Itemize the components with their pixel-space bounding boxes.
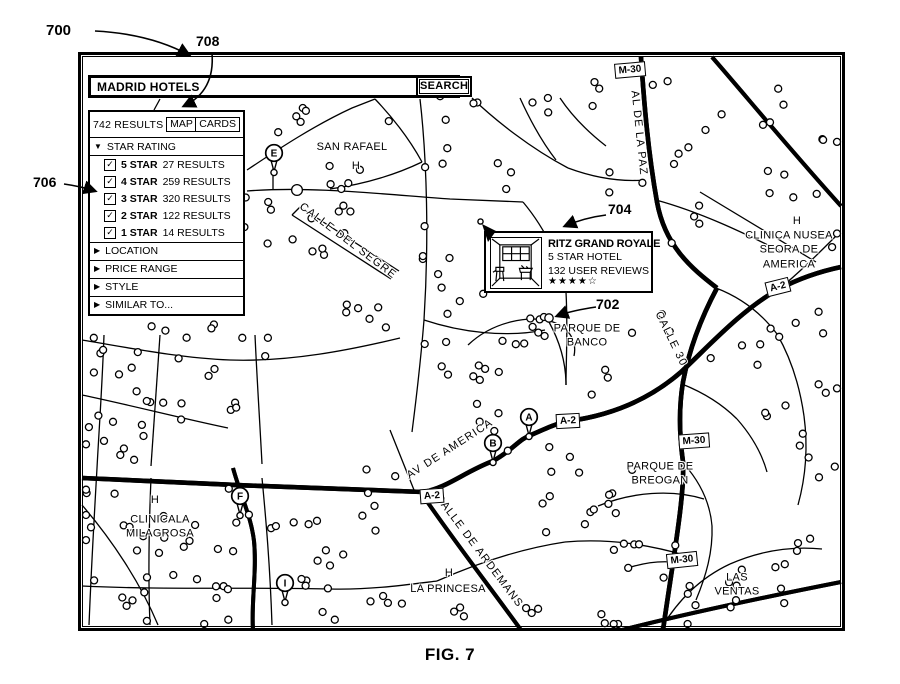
chevron-right-icon: ▶ (94, 283, 100, 291)
filter-label: 3 STAR (121, 193, 158, 205)
checkbox-2-star[interactable]: ✓ (104, 210, 116, 222)
section-location[interactable]: ▶LOCATION (90, 242, 243, 260)
section-label: SIMILAR TO... (105, 299, 173, 311)
filter-count: 122 RESULTS (163, 210, 231, 222)
tab-cards[interactable]: CARDS (195, 117, 240, 132)
results-filter-panel: 742 RESULTS MAP CARDS ▼STAR RATING✓5 STA… (88, 110, 245, 316)
section-star-rating[interactable]: ▼STAR RATING (90, 138, 243, 156)
figure-frame: EABFI SAN RAFAELHHCLINICA NUSEA SEORA DE… (78, 52, 845, 631)
search-input[interactable]: MADRID HOTELS (90, 77, 458, 96)
filter-label: 2 STAR (121, 210, 158, 222)
search-query-text: MADRID HOTELS (97, 80, 200, 94)
patent-figure-page: 700 708 706 704 702 (0, 0, 900, 684)
chevron-right-icon: ▶ (94, 265, 100, 273)
filter-row-2-star: ✓2 STAR122 RESULTS (90, 208, 243, 225)
checkbox-1-star[interactable]: ✓ (104, 227, 116, 239)
filter-count: 259 RESULTS (163, 176, 231, 188)
search-button[interactable]: SEARCH (416, 76, 472, 97)
results-header-row: 742 RESULTS MAP CARDS (90, 112, 243, 138)
hotel-callout[interactable]: RITZ GRAND ROYALE 5 STAR HOTEL 132 USER … (484, 231, 653, 293)
ref-numeral-704: 704 (608, 201, 631, 217)
filter-label: 1 STAR (121, 227, 158, 239)
section-style[interactable]: ▶STYLE (90, 278, 243, 296)
search-bar: MADRID HOTELS (88, 75, 460, 98)
hotel-callout-text: RITZ GRAND ROYALE 5 STAR HOTEL 132 USER … (548, 237, 647, 287)
section-label: PRICE RANGE (105, 263, 177, 275)
callout-pointer-icon (477, 218, 499, 244)
hotel-review-count: 132 USER REVIEWS (548, 265, 647, 277)
hotel-name: RITZ GRAND ROYALE (548, 238, 647, 250)
filter-row-1-star: ✓1 STAR14 RESULTS (90, 225, 243, 242)
section-label: LOCATION (105, 245, 158, 257)
hotel-star-class: 5 STAR HOTEL (548, 251, 647, 263)
ref-numeral-702: 702 (596, 296, 619, 312)
filter-count: 27 RESULTS (163, 159, 225, 171)
filter-row-3-star: ✓3 STAR320 RESULTS (90, 190, 243, 207)
ref-numeral-700: 700 (46, 22, 71, 39)
section-label: STAR RATING (107, 141, 176, 153)
filter-count: 14 RESULTS (163, 227, 225, 239)
checkbox-3-star[interactable]: ✓ (104, 193, 116, 205)
filter-label: 4 STAR (121, 176, 158, 188)
checkbox-5-star[interactable]: ✓ (104, 159, 116, 171)
section-label: STYLE (105, 281, 138, 293)
filter-label: 5 STAR (121, 159, 158, 171)
figure-caption: FIG. 7 (0, 645, 900, 665)
results-count: 742 RESULTS (93, 119, 166, 131)
chevron-right-icon: ▶ (94, 301, 100, 309)
section-similar-to[interactable]: ▶SIMILAR TO... (90, 296, 243, 314)
chevron-right-icon: ▶ (94, 247, 100, 255)
hotel-photo-thumbnail (490, 237, 542, 289)
star-rating-icons: ★★★★☆ (548, 278, 647, 286)
checkbox-4-star[interactable]: ✓ (104, 176, 116, 188)
ref-numeral-708: 708 (196, 33, 219, 49)
filter-row-5-star: ✓5 STAR27 RESULTS (90, 156, 243, 173)
filter-row-4-star: ✓4 STAR259 RESULTS (90, 173, 243, 190)
ui-layer: MADRID HOTELS SEARCH 742 RESULTS MAP CAR… (78, 52, 845, 631)
filter-count: 320 RESULTS (163, 193, 231, 205)
section-price-range[interactable]: ▶PRICE RANGE (90, 260, 243, 278)
tab-map[interactable]: MAP (166, 117, 197, 132)
chevron-down-icon: ▼ (94, 143, 102, 151)
ref-numeral-706: 706 (33, 174, 56, 190)
